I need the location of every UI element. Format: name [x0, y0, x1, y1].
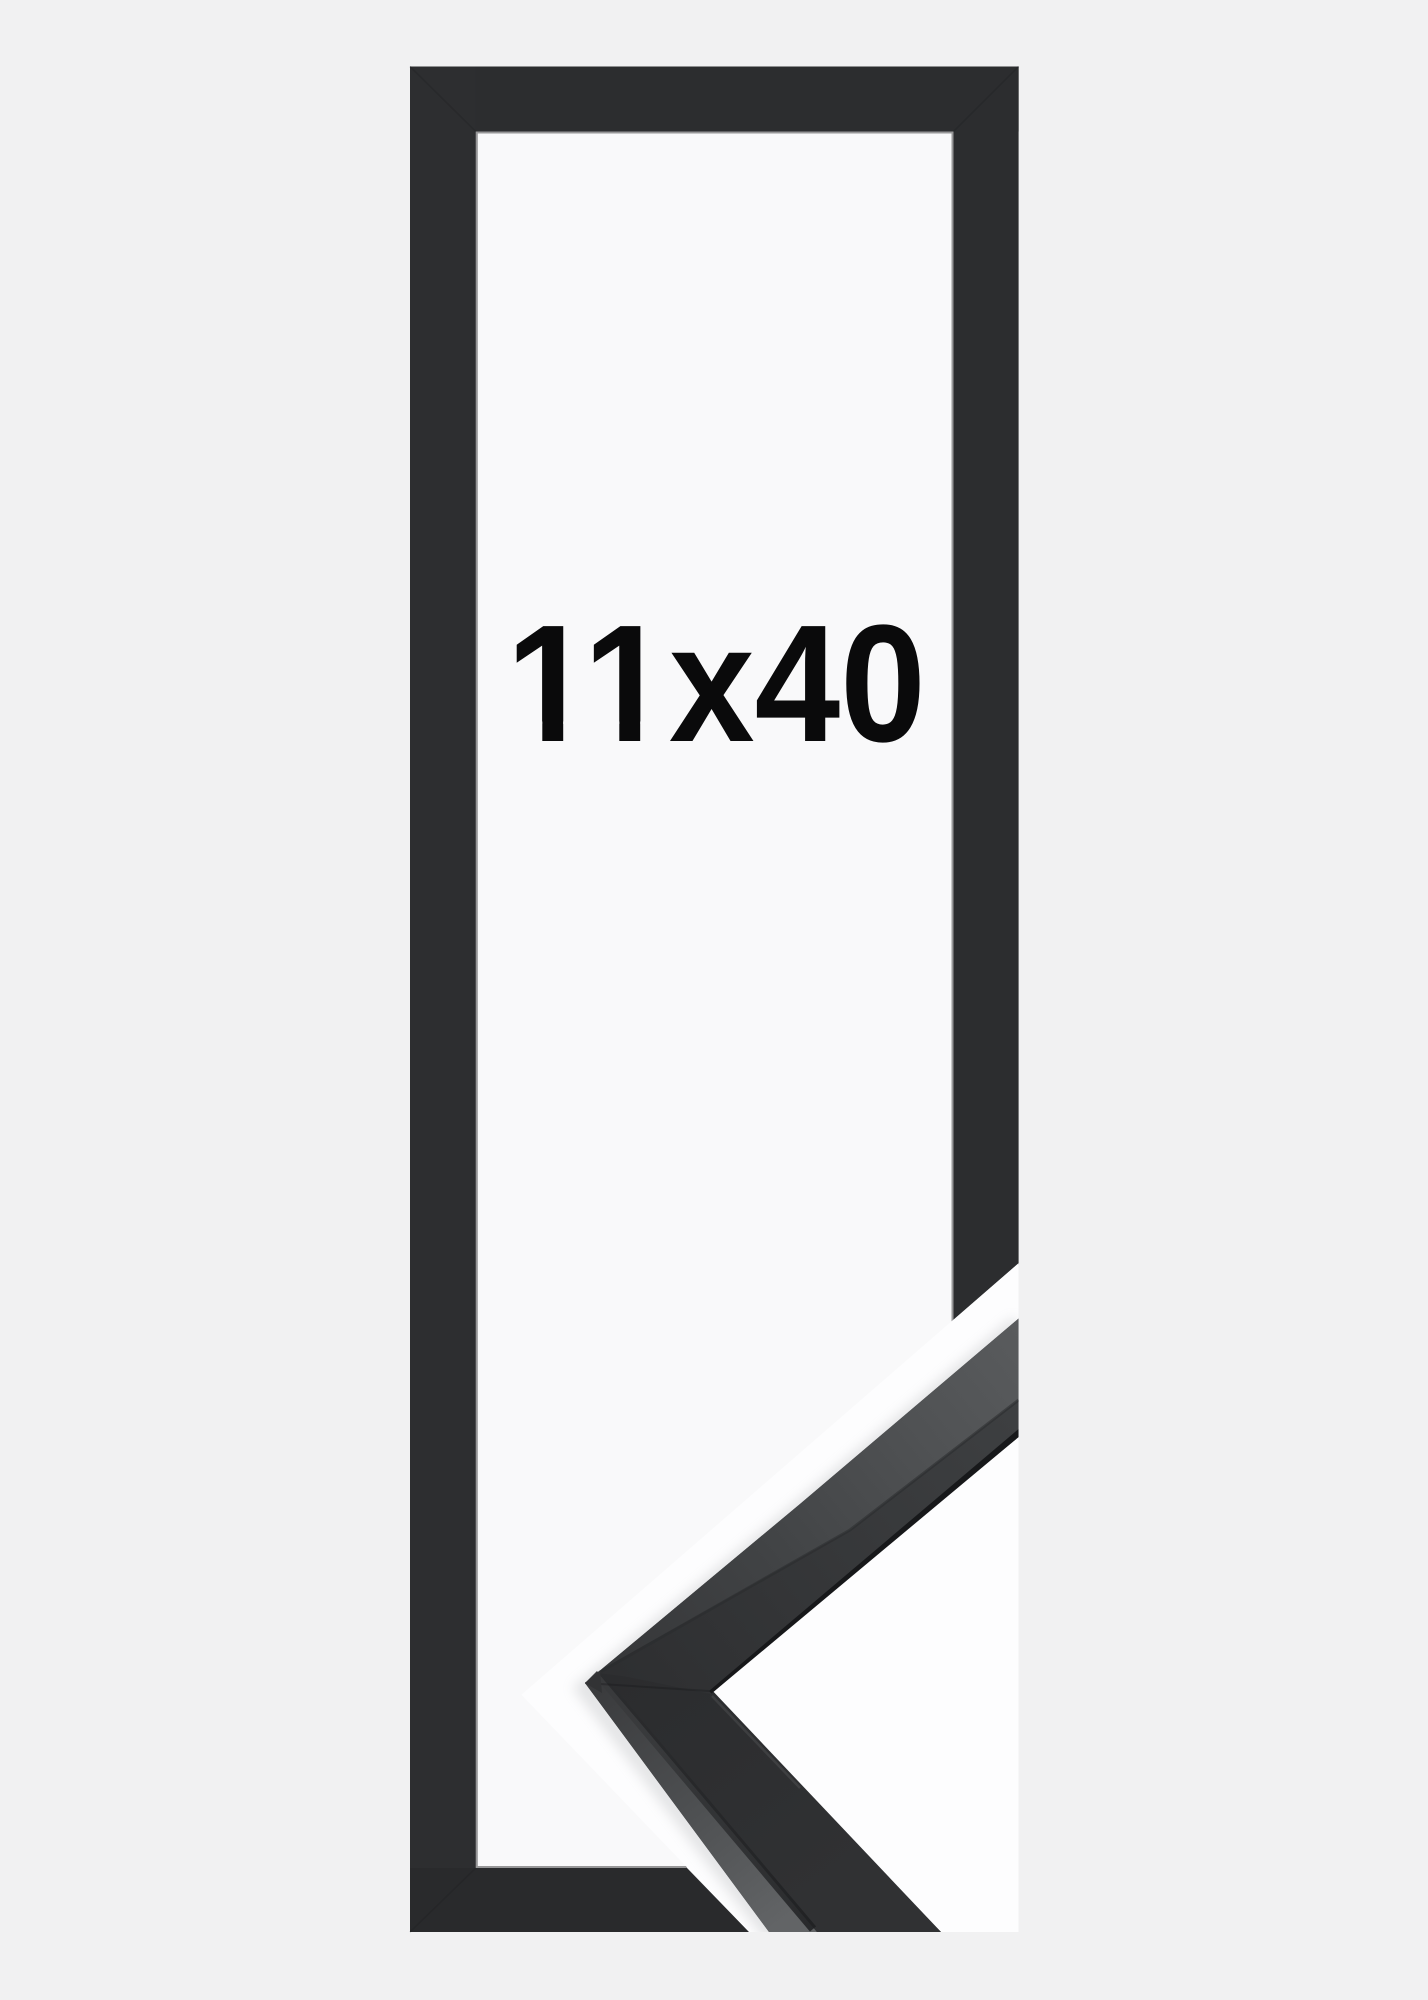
svg-text:11x40: 11x40	[506, 591, 926, 777]
